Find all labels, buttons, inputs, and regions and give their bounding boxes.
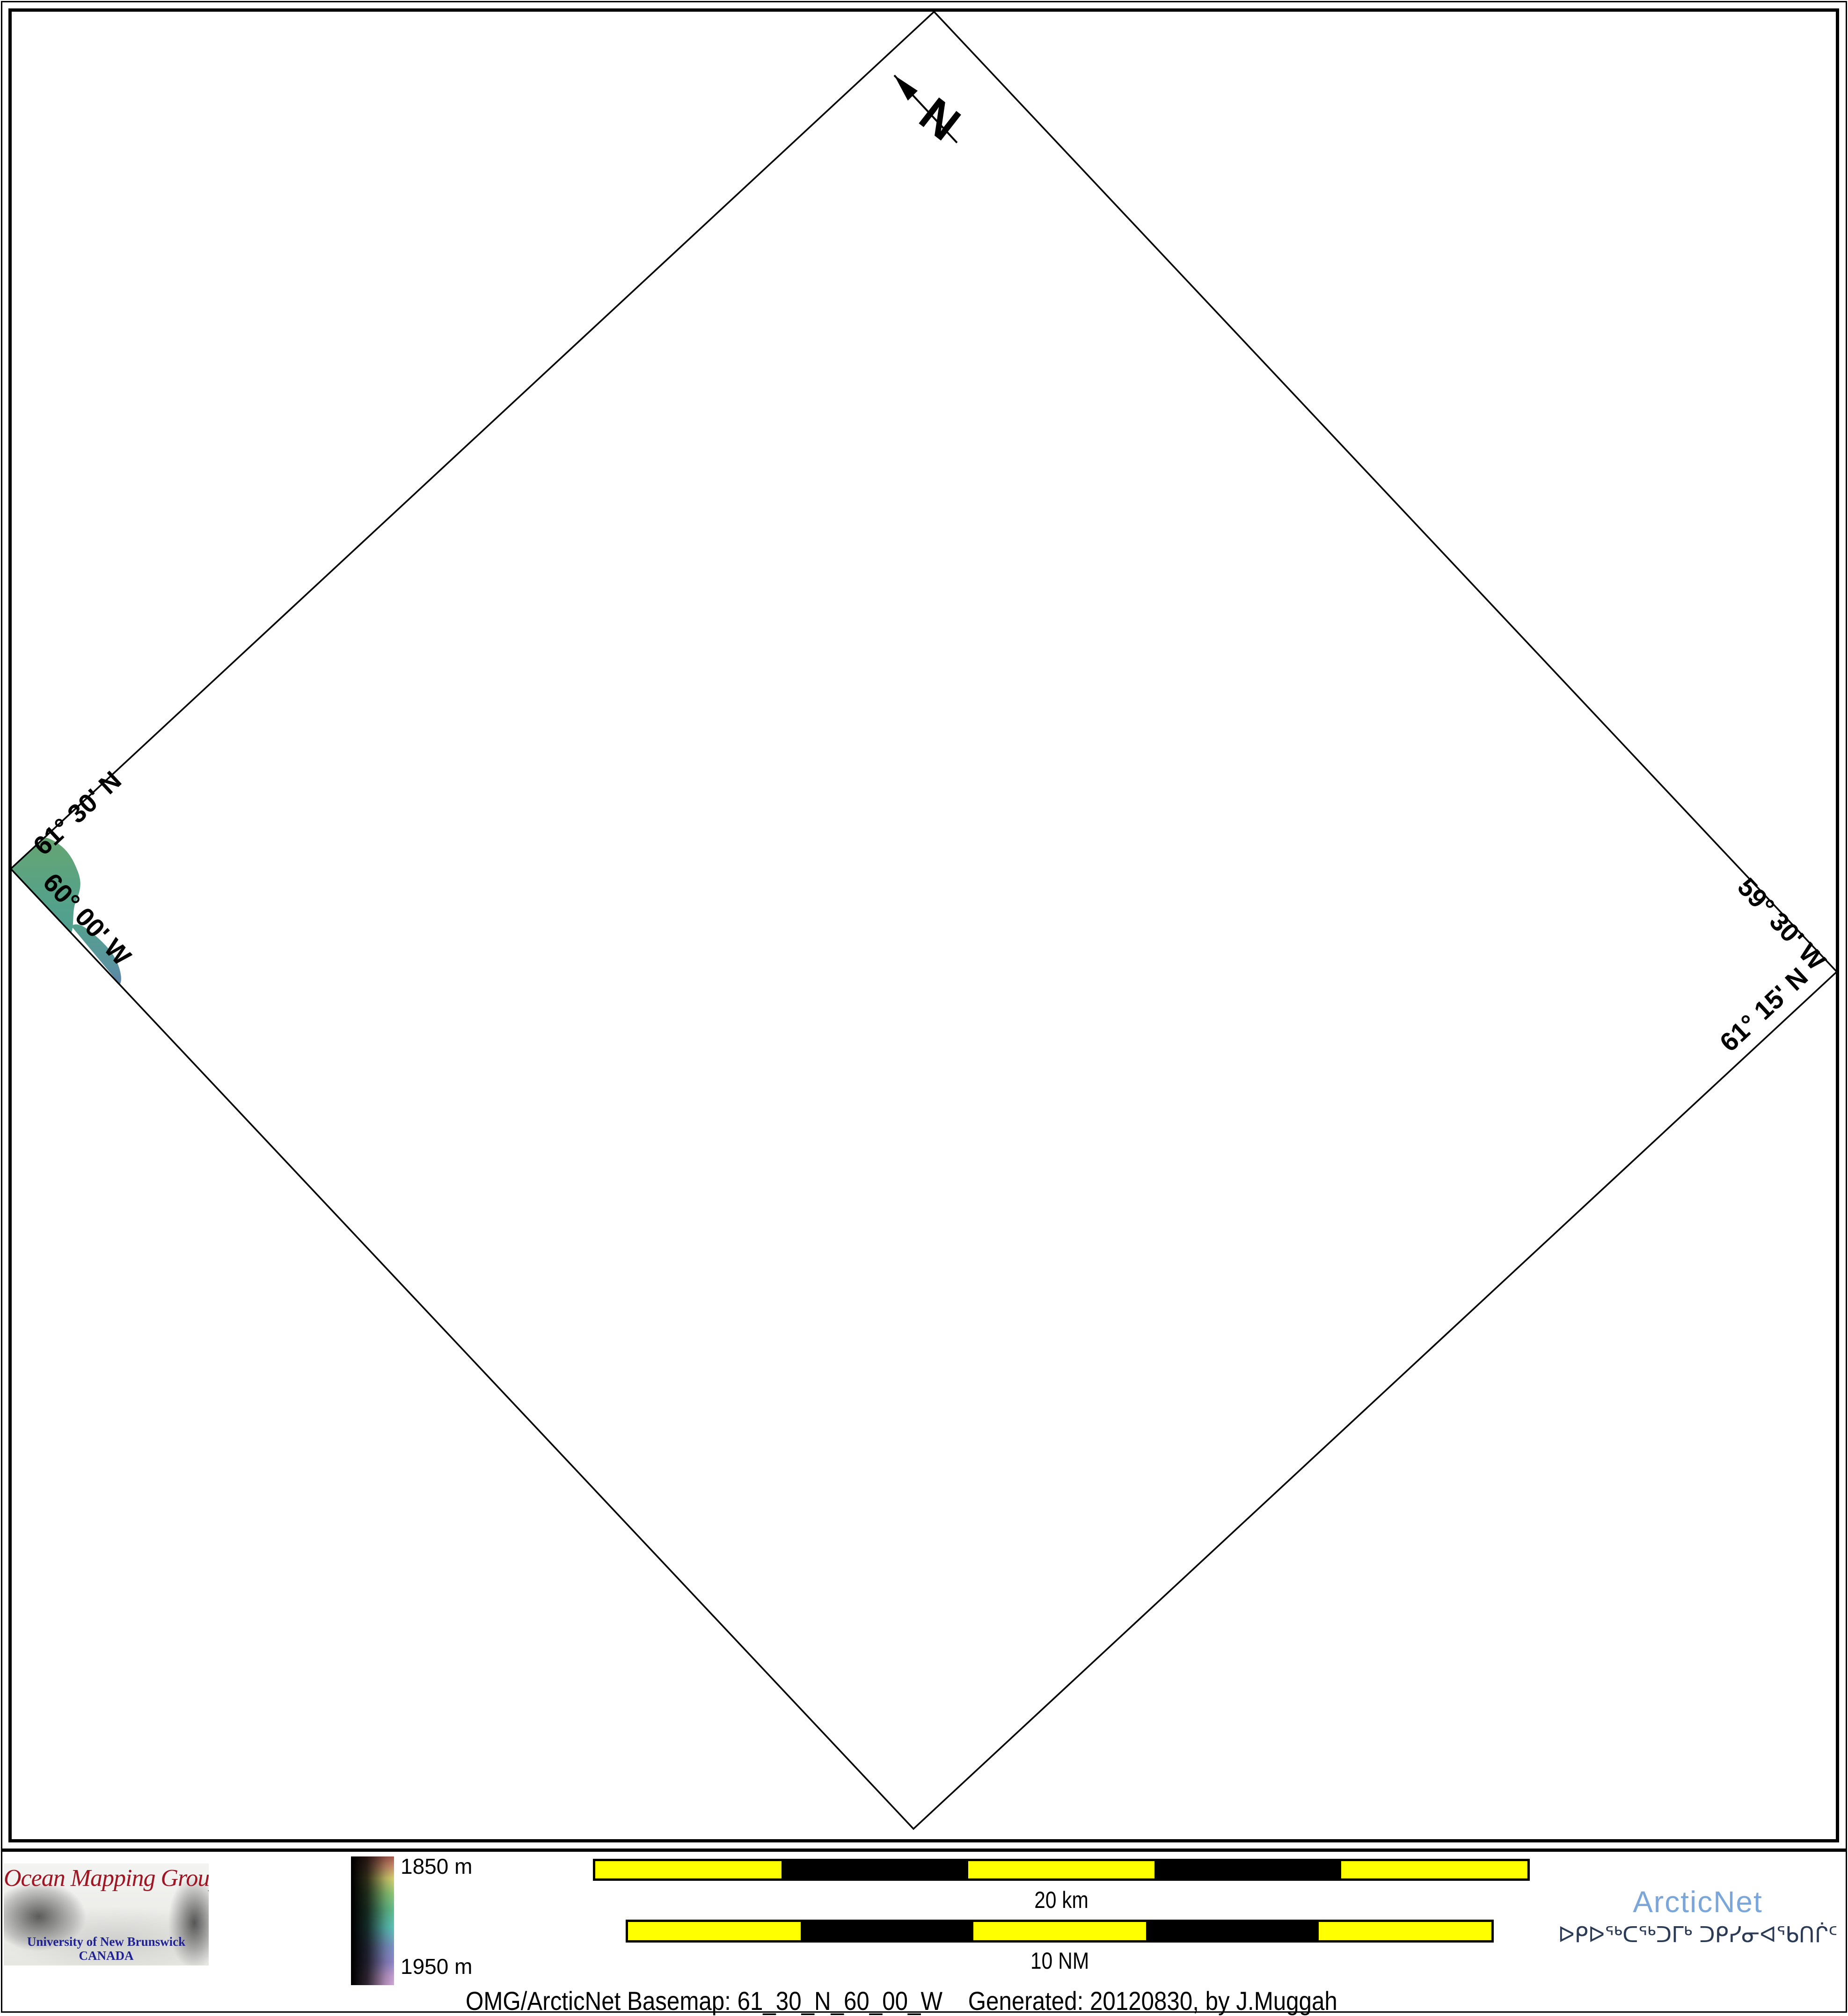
depth-colorbar bbox=[351, 1856, 394, 1985]
arcticnet-inuktitut: ᐅᑭᐅᖅᑕᖅᑐᒥᒃ ᑐᑭᓯᓂᐊᖃᑎᒌᑦ bbox=[1549, 1922, 1847, 1947]
north-arrow-label: N bbox=[910, 87, 970, 151]
scalebar-km bbox=[593, 1859, 1530, 1881]
omg-logo-country: CANADA bbox=[4, 1949, 209, 1963]
omg-logo: Ocean Mapping Group University of New Br… bbox=[4, 1863, 209, 1965]
arcticnet-logo: ArcticNet ᐅᑭᐅᖅᑕᖅᑐᒥᒃ ᑐᑭᓯᓂᐊᖃᑎᒌᑦ bbox=[1549, 1885, 1847, 1947]
scalebar-km-segment bbox=[1341, 1861, 1527, 1878]
scalebar-km-segment bbox=[595, 1861, 782, 1878]
scalebar-nm-label: 10 NM bbox=[626, 1947, 1494, 1974]
scalebar-km-segment bbox=[1154, 1861, 1341, 1878]
scalebar-nm-segment bbox=[801, 1922, 973, 1940]
north-arrow: N bbox=[894, 75, 970, 151]
scalebar-nm-segment bbox=[628, 1922, 801, 1940]
scalebar-km-segment bbox=[782, 1861, 968, 1878]
omg-logo-title: Ocean Mapping Group bbox=[4, 1864, 209, 1892]
coord-label-upper-right: 59° 30' W bbox=[1732, 872, 1832, 976]
scalebar-nm-segment bbox=[1319, 1922, 1491, 1940]
colorbar-top-label: 1850 m bbox=[401, 1854, 472, 1879]
scalebar-nm bbox=[626, 1920, 1494, 1943]
basemap-caption: OMG/ArcticNet Basemap: 61_30_N_60_00_W G… bbox=[0, 1986, 1848, 2016]
coord-label-lower-right: 61° 15' N bbox=[1714, 962, 1813, 1057]
scalebar-km-segment bbox=[968, 1861, 1154, 1878]
scalebar-km-label: 20 km bbox=[593, 1886, 1530, 1914]
map-canvas: N 61° 30' N 60° 00' W 59° 30' W 61° 15' … bbox=[0, 0, 1848, 2014]
scalebar-nm-segment bbox=[1146, 1922, 1319, 1940]
scalebar-nm-segment bbox=[973, 1922, 1146, 1940]
map-neatline bbox=[11, 12, 1837, 1829]
coord-label-lower-left: 60° 00' W bbox=[37, 867, 137, 971]
coord-label-upper-left: 61° 30' N bbox=[27, 765, 127, 861]
omg-logo-institution: University of New Brunswick bbox=[4, 1935, 209, 1949]
arcticnet-name: ArcticNet bbox=[1549, 1885, 1847, 1919]
colorbar-bottom-label: 1950 m bbox=[401, 1954, 472, 1979]
